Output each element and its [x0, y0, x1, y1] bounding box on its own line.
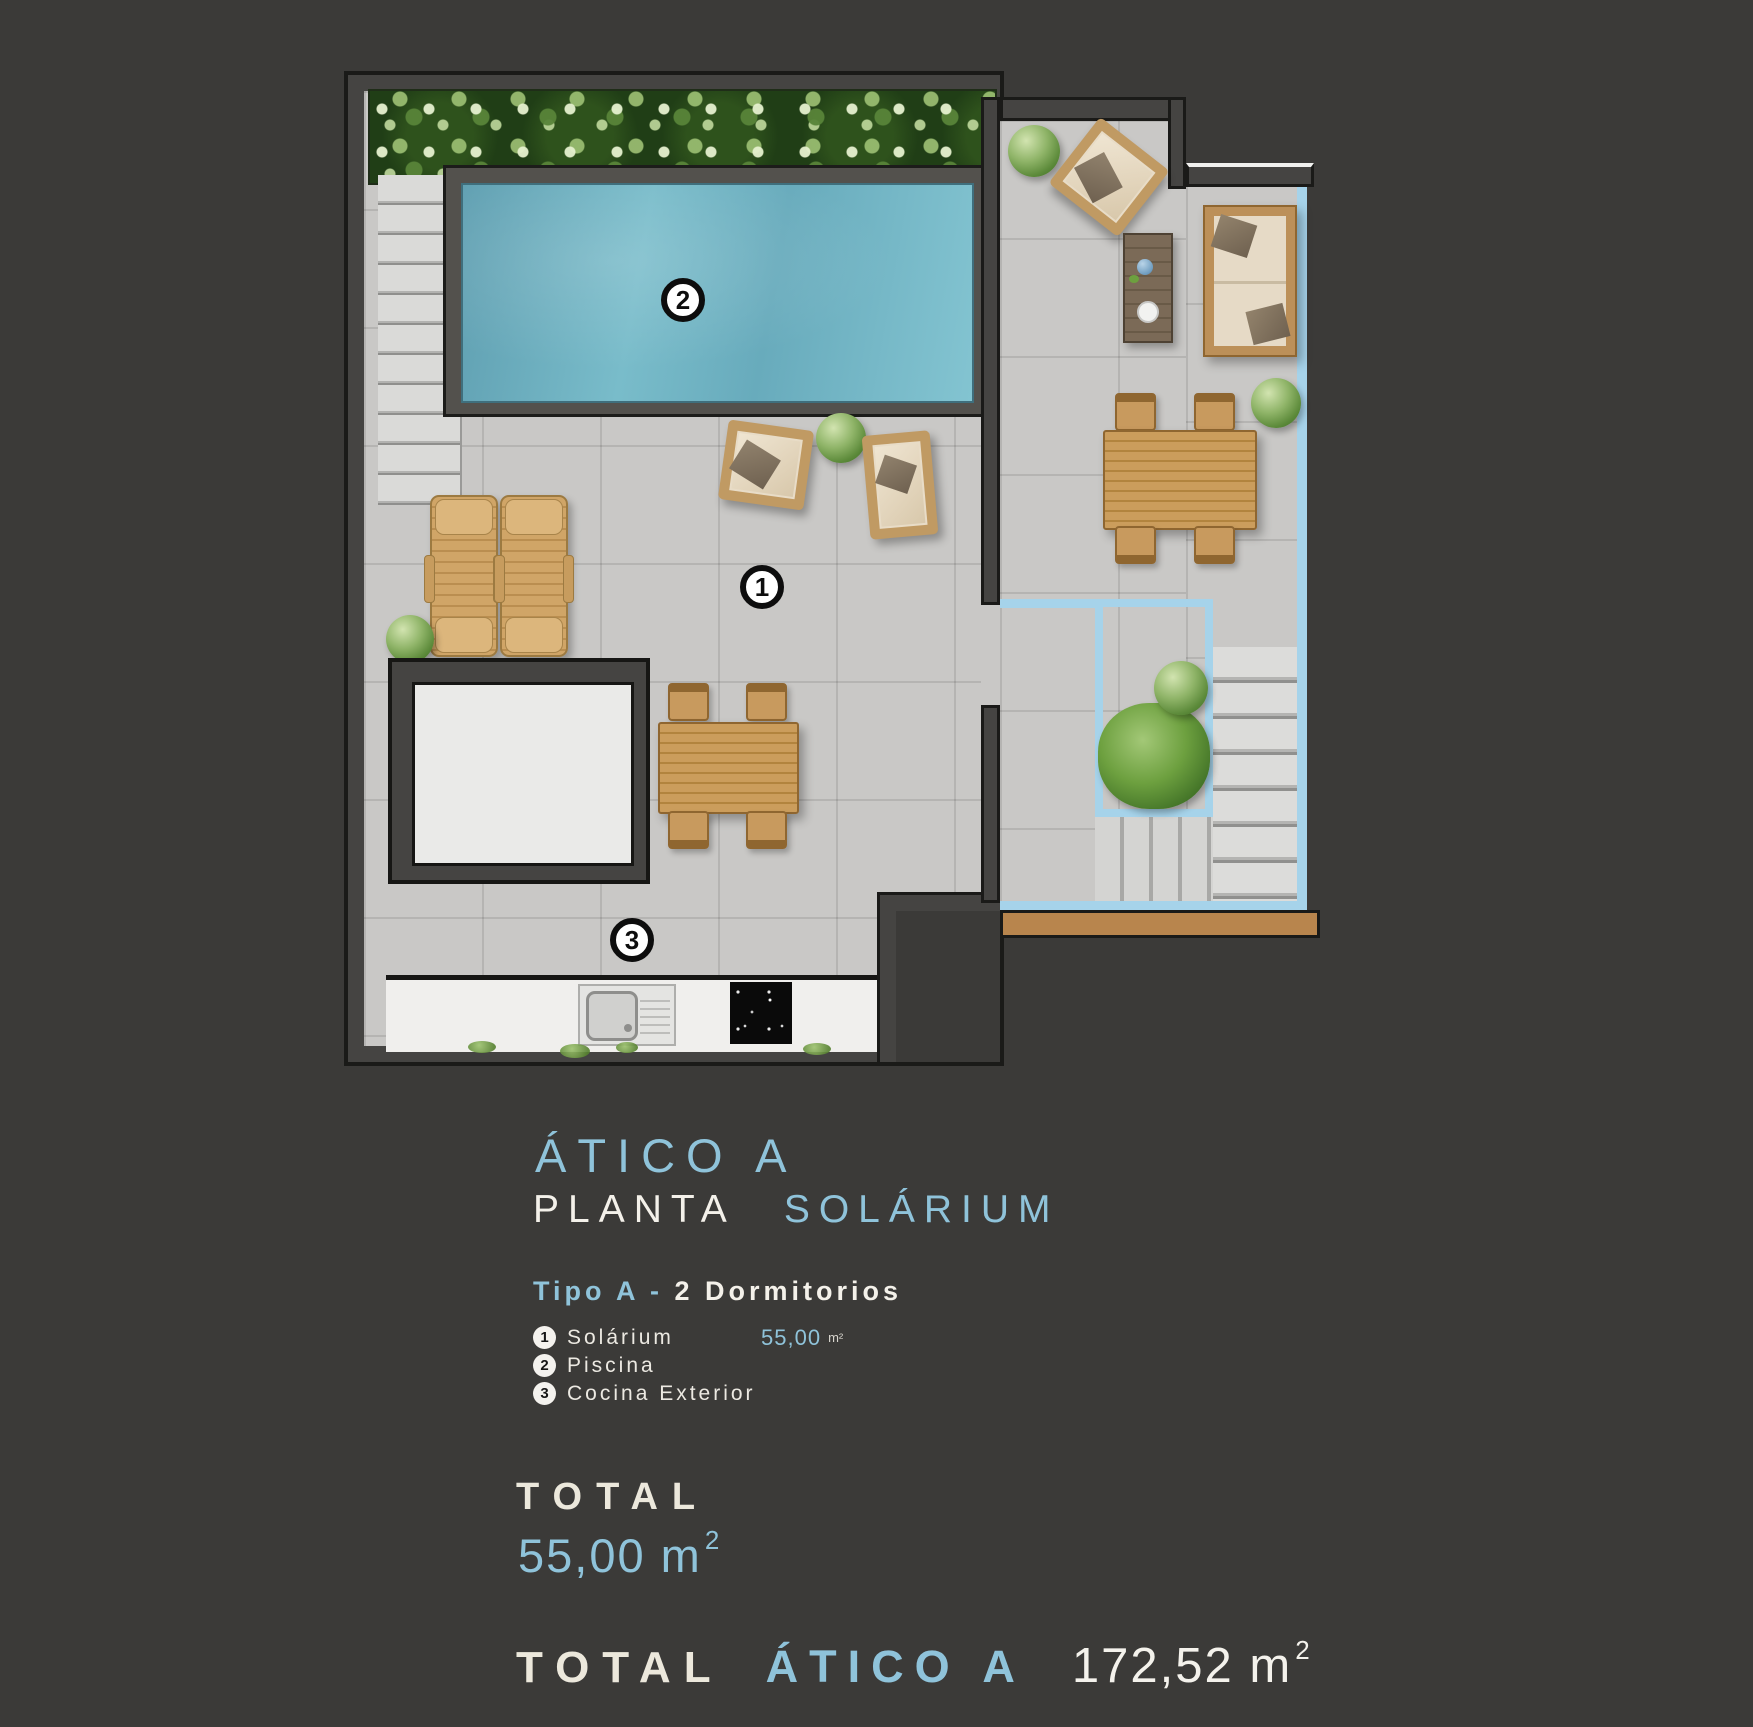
marker-3-cocina-icon: 3	[610, 918, 654, 962]
glass-balustrade-stair	[1000, 599, 1097, 608]
page-title: ÁTICO A	[535, 1128, 797, 1183]
marker-1-solarium-icon: 1	[740, 565, 784, 609]
dining-chair	[668, 811, 709, 849]
divider-wall-lower	[981, 705, 1000, 903]
legend-label: Piscina	[567, 1354, 727, 1378]
grand-total-value: 172,52 m2	[1072, 1638, 1309, 1694]
decor-vase	[1137, 259, 1153, 275]
legend-row-solarium: 1 Solárium 55,00 m²	[533, 1326, 843, 1349]
dining-chair	[668, 683, 709, 721]
bush	[1251, 378, 1301, 428]
wall-top-right	[1186, 163, 1314, 187]
legend-row-cocina: 3 Cocina Exterior	[533, 1382, 843, 1405]
legend-label: Solárium	[567, 1326, 727, 1350]
stairwell-bush-large	[1098, 703, 1210, 809]
subtitle-solarium: SOLÁRIUM	[784, 1188, 1060, 1231]
grand-total-unit-name: ÁTICO A	[766, 1641, 1026, 1693]
legend-label: Cocina Exterior	[567, 1382, 756, 1406]
grand-total-label: TOTAL	[516, 1643, 724, 1693]
glass-balustrade-right	[1297, 187, 1307, 910]
legend-area-unit: m²	[828, 1330, 843, 1345]
decor-plate	[1137, 301, 1159, 323]
pool	[461, 183, 974, 403]
dining-table-right	[1103, 430, 1257, 530]
glass-balustrade-bottom	[1000, 901, 1307, 910]
plant-tuft	[560, 1044, 590, 1058]
lounger-arm-left	[494, 555, 505, 603]
plant-tuft	[616, 1042, 638, 1053]
terrace-passage	[981, 605, 1000, 705]
wall-step	[1168, 97, 1186, 189]
building-notch	[880, 895, 1000, 1062]
lounger-footrest	[505, 617, 563, 653]
dining-chair	[1194, 526, 1235, 564]
plant-tuft	[468, 1041, 496, 1053]
bush	[816, 413, 866, 463]
bush	[386, 615, 434, 663]
total-sup: 2	[705, 1525, 721, 1555]
legend-area-value: 55,00	[761, 1325, 821, 1351]
balcony-wood-edge	[1000, 910, 1320, 938]
lounger-headrest	[505, 499, 563, 535]
legend-number-3-icon: 3	[533, 1382, 556, 1405]
floor-plan: 2 1 3	[348, 75, 1328, 1070]
unit-type-line: Tipo A - 2 Dormitorios	[533, 1276, 902, 1307]
sofa	[1203, 205, 1297, 357]
legend-number-1-icon: 1	[533, 1326, 556, 1349]
wall-top	[1000, 97, 1186, 121]
lounger-footrest	[435, 617, 493, 653]
pool-armchair-1	[718, 419, 814, 510]
decor-plant	[1129, 275, 1139, 283]
sink-basin	[586, 991, 638, 1041]
kitchen-sink	[578, 984, 676, 1046]
dining-chair	[1115, 526, 1156, 564]
lounger-arm-left	[424, 555, 435, 603]
legend-number-2-icon: 2	[533, 1354, 556, 1377]
plant-tuft	[803, 1043, 831, 1055]
legend-row-piscina: 2 Piscina	[533, 1354, 843, 1377]
marker-2-label: 2	[676, 285, 690, 316]
coffee-table	[1123, 233, 1173, 343]
unit-type-white: 2 Dormitorios	[675, 1276, 903, 1306]
sun-lounger-2	[500, 495, 568, 657]
sink-drainboard	[640, 994, 670, 1034]
sun-lounger-1	[430, 495, 498, 657]
dining-table-left	[658, 722, 799, 814]
grand-total-line: TOTAL ÁTICO A 172,52 m2	[516, 1638, 1309, 1694]
stairwell-bush-small	[1154, 661, 1208, 715]
stairs-right	[1213, 647, 1297, 901]
stairs-lower	[1095, 817, 1213, 901]
sink-faucet	[624, 1024, 632, 1032]
lounger-headrest	[435, 499, 493, 535]
unit-type-blue: Tipo A -	[533, 1276, 663, 1306]
total-value: 55,00 m2	[518, 1528, 718, 1583]
dining-chair	[746, 811, 787, 849]
page-subtitle: PLANTASOLÁRIUM	[533, 1188, 1060, 1232]
subtitle-planta: PLANTA	[533, 1188, 736, 1231]
total-label: TOTAL	[516, 1476, 709, 1519]
grand-total-sup: 2	[1295, 1635, 1311, 1665]
rooftop-access-room	[412, 682, 634, 866]
marker-2-piscina-icon: 2	[661, 278, 705, 322]
marker-3-label: 3	[625, 925, 639, 956]
legend: 1 Solárium 55,00 m² 2 Piscina 3 Cocina E…	[533, 1326, 843, 1410]
pool-armchair-2	[862, 430, 939, 540]
grand-total-area: 172,52 m	[1072, 1639, 1292, 1693]
dining-chair	[746, 683, 787, 721]
sofa-cushion-split	[1214, 281, 1286, 284]
total-area: 55,00 m	[518, 1529, 702, 1582]
dining-chair	[1194, 393, 1235, 431]
marker-1-label: 1	[755, 572, 769, 603]
divider-wall-upper	[981, 97, 1000, 605]
dining-chair	[1115, 393, 1156, 431]
kitchen-cooktop	[730, 982, 792, 1044]
bush	[1008, 125, 1060, 177]
lounger-arm-right	[563, 555, 574, 603]
